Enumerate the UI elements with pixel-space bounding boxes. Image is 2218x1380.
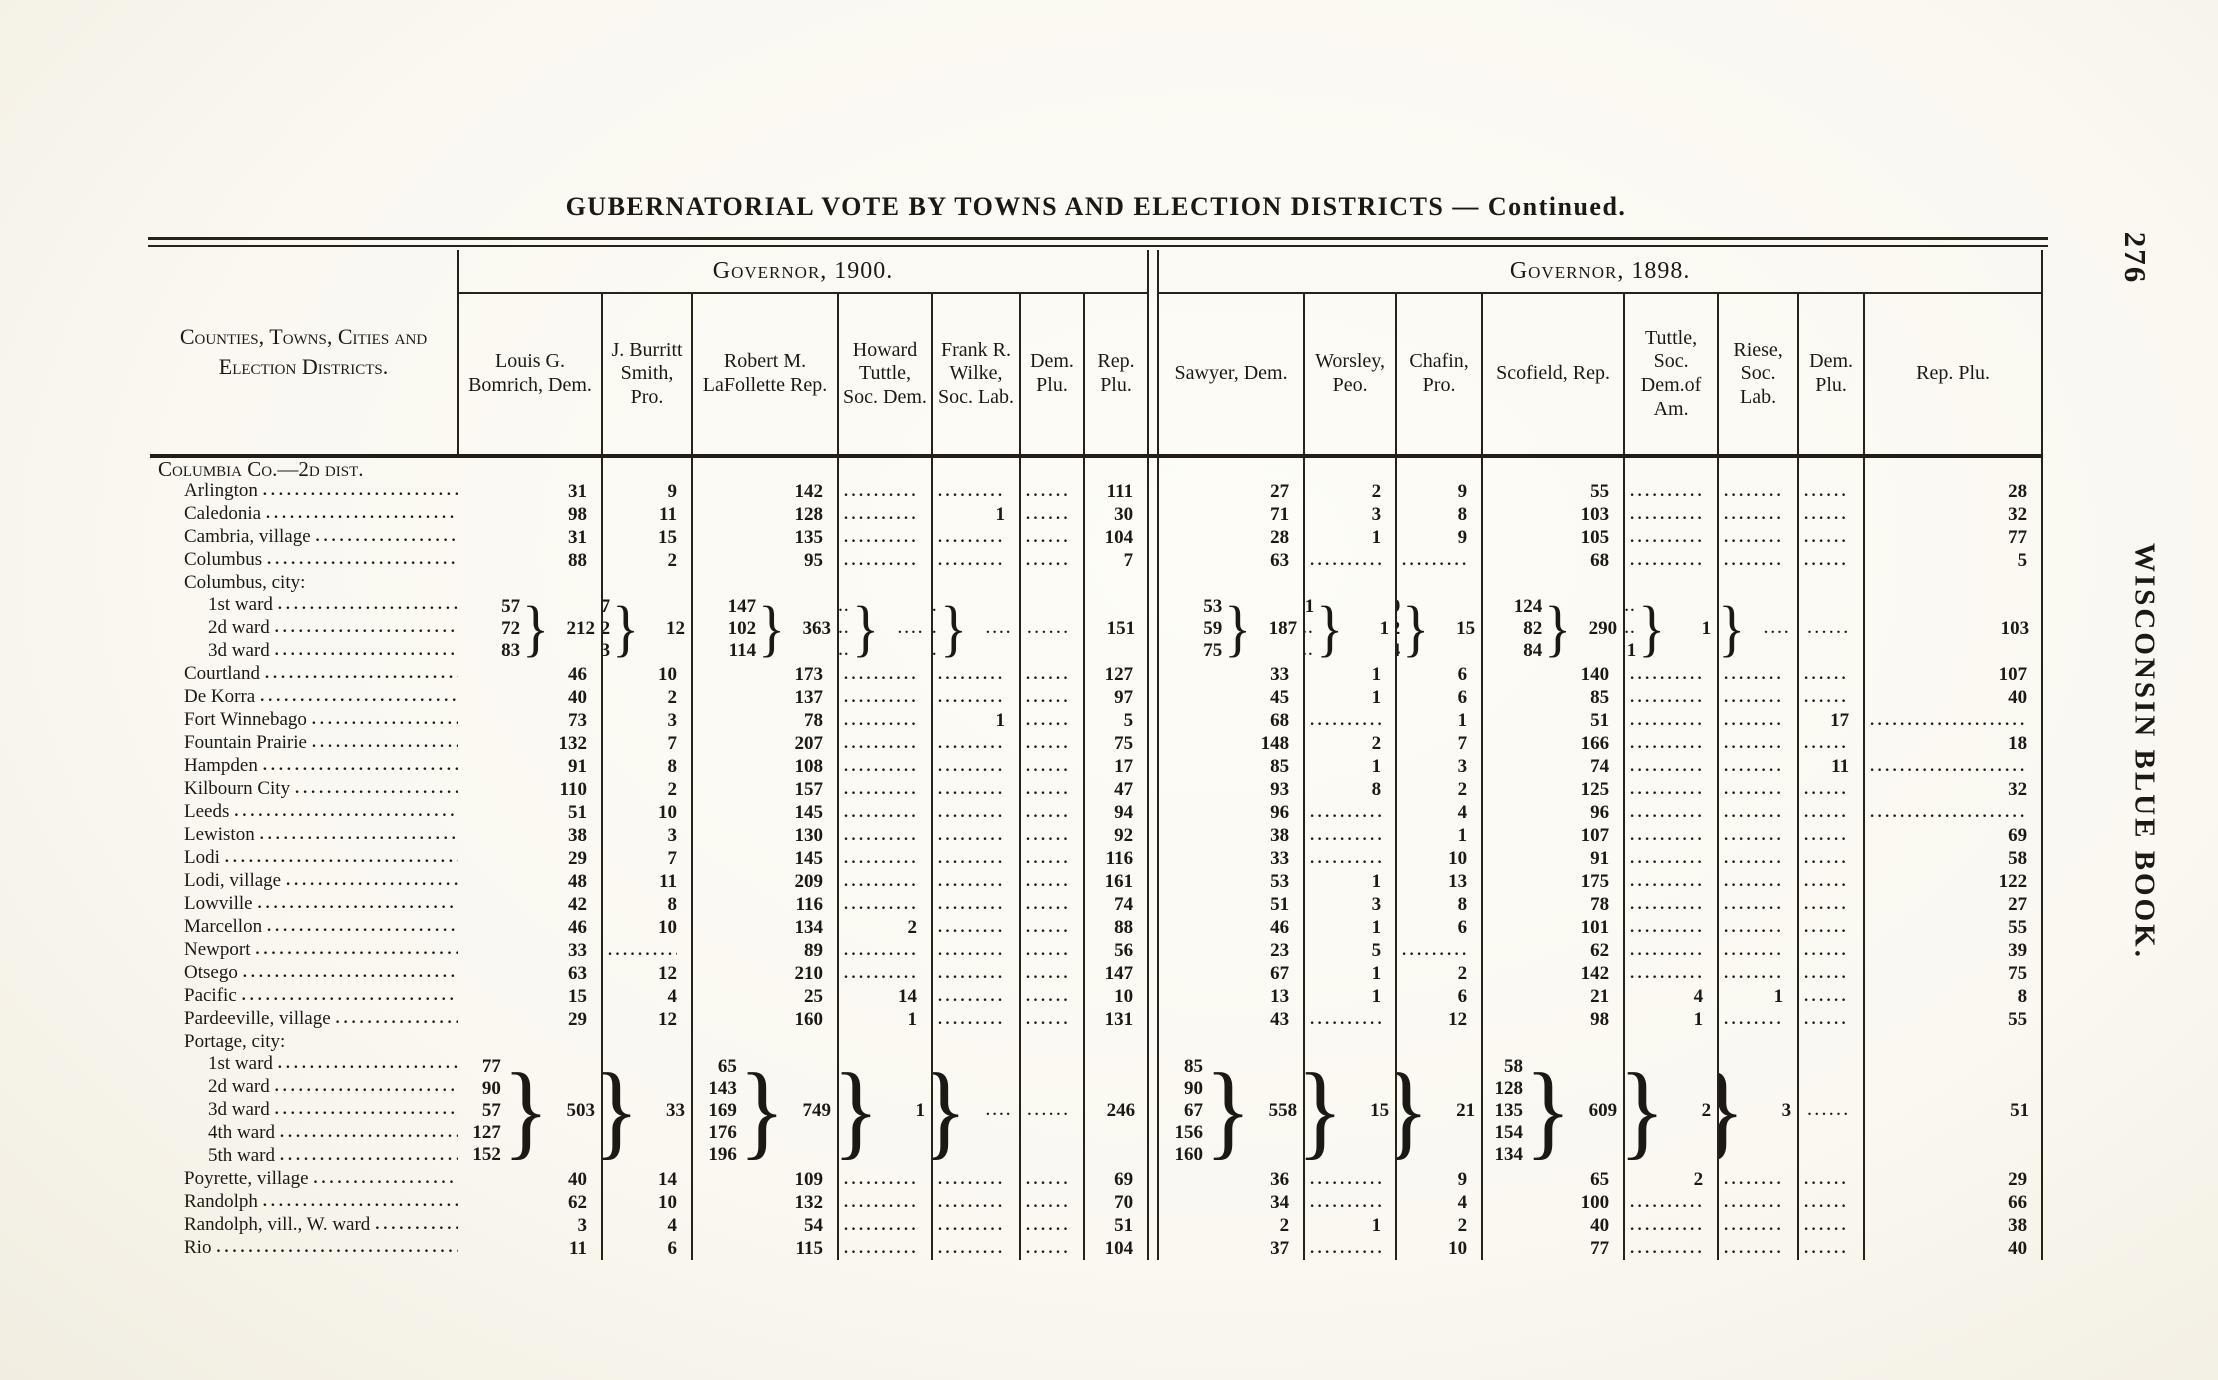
ward-value: 83 xyxy=(482,640,520,662)
value-cell: 33 xyxy=(1158,847,1304,870)
section-divider xyxy=(1148,893,1158,916)
value-cell: 2 xyxy=(838,916,932,939)
town-label: Pacific.................................… xyxy=(150,985,458,1008)
value-cell: 6 xyxy=(1396,663,1482,686)
value-cell: ...................... xyxy=(1798,480,1864,503)
value-cell: 4 xyxy=(602,1214,692,1237)
table-row: Randolph................................… xyxy=(150,1191,2042,1214)
ward-total: 212 xyxy=(549,618,595,640)
value-cell: 91 xyxy=(458,755,602,778)
value-cell xyxy=(1158,1031,1304,1053)
value-cell: ...................... xyxy=(1798,1191,1864,1214)
empty-dots: ...................... xyxy=(1719,527,1783,549)
value-cell: 25 xyxy=(692,985,838,1008)
empty-dots: ...................... xyxy=(1719,1192,1783,1214)
value-cell xyxy=(1304,456,1396,480)
empty-dots: ...................... xyxy=(839,756,917,778)
brace-glyph: } xyxy=(503,1058,549,1164)
town-label: Fountain Prairie........................… xyxy=(150,732,458,755)
ward-group: ..2..1..}3 xyxy=(1719,1056,1797,1166)
town-label: Lodi, village...........................… xyxy=(150,870,458,893)
empty-dots: ...................... xyxy=(1625,825,1703,847)
value-cell: 107 xyxy=(1482,824,1624,847)
row-header: Counties, Towns, Cities and Election Dis… xyxy=(150,250,458,456)
value-cell: ...................... xyxy=(1020,870,1084,893)
ward-group: 1248284}290 xyxy=(1483,596,1623,662)
value-cell: 2 xyxy=(602,778,692,801)
ward-value: 152 xyxy=(463,1144,501,1166)
ward-value: 82 xyxy=(1504,618,1542,640)
ward-group: 58128135154134}609 xyxy=(1483,1056,1623,1166)
row-label: 1st ward................................… xyxy=(150,1053,458,1076)
empty-dots: ...................... xyxy=(1799,825,1849,847)
leader-dots: ........................................… xyxy=(270,640,458,662)
value-cell: 29 xyxy=(458,1008,602,1031)
ward-values: 147102114 xyxy=(718,596,756,662)
value-cell: ...................... xyxy=(1718,732,1798,755)
empty-dots: ...................... xyxy=(1799,917,1849,939)
row-label: Randolph, vill., W. ward................… xyxy=(150,1214,458,1237)
value-cell: ...................... xyxy=(1718,480,1798,503)
ward-group-cell: 147102114}363 xyxy=(692,594,838,663)
empty-dots: ...................... xyxy=(839,550,917,572)
leader-dots: ........................................… xyxy=(229,801,458,823)
value-cell: 3 xyxy=(602,709,692,732)
leader-dots: ........................................… xyxy=(250,939,458,961)
column-header: Robert M. LaFollette Rep. xyxy=(692,293,838,456)
brace-glyph: } xyxy=(1525,1058,1571,1164)
value-cell: 166 xyxy=(1482,732,1624,755)
value-cell: ...................... xyxy=(1798,778,1864,801)
ward-value: 160 xyxy=(1165,1144,1203,1166)
value-cell: 13 xyxy=(1396,870,1482,893)
value-cell: 40 xyxy=(1864,1237,2042,1260)
value-cell: 4 xyxy=(1396,801,1482,824)
value-cell xyxy=(1304,572,1396,594)
value-cell: ...................... xyxy=(1718,686,1798,709)
group-heading-label: Portage, city: xyxy=(150,1031,458,1053)
value-cell: 160 xyxy=(692,1008,838,1031)
brace-glyph: } xyxy=(940,597,967,660)
ward-total: 2 xyxy=(1665,1100,1711,1122)
value-cell: ...................... xyxy=(1718,1214,1798,1237)
empty-dots: ...................... xyxy=(1625,940,1703,962)
ward-group: ..10713}21 xyxy=(1397,1056,1481,1166)
table-row: Newport.................................… xyxy=(150,939,2042,962)
scanned-book-page: GUBERNATORIAL VOTE BY TOWNS AND ELECTION… xyxy=(0,0,2218,1380)
value-cell: 27 xyxy=(1158,480,1304,503)
empty-dots: ...................... xyxy=(933,802,1005,824)
value-cell: ...................... xyxy=(1718,801,1798,824)
value-cell: 65 xyxy=(1482,1168,1624,1191)
value-cell: ...................... xyxy=(1798,847,1864,870)
section-divider xyxy=(1148,732,1158,755)
ward-total: .... xyxy=(967,1099,1013,1122)
town-label: Randolph, vill., W. ward xyxy=(184,1214,370,1236)
row-label: Randolph................................… xyxy=(150,1191,458,1214)
row-header-label: Counties, Towns, Cities and Election Dis… xyxy=(180,324,427,379)
value-cell: ...................... xyxy=(838,1191,932,1214)
ward-value: 67 xyxy=(1165,1100,1203,1122)
ward-group-cell: ...... xyxy=(1798,594,1864,663)
value-cell: 43 xyxy=(1158,1008,1304,1031)
value-cell: ...................... xyxy=(1798,824,1864,847)
empty-dots: ...................... xyxy=(1799,779,1849,801)
town-label: Lowville xyxy=(184,893,253,915)
value-cell: 116 xyxy=(692,893,838,916)
empty-dots: ...................... xyxy=(1625,779,1703,801)
group-single-value: 103 xyxy=(1865,618,2041,640)
empty-dots: ...................... xyxy=(1305,1238,1381,1260)
ward-value: 135 xyxy=(1485,1100,1523,1122)
table-row: 1st ward................................… xyxy=(150,1053,2042,1076)
section-divider xyxy=(1148,1237,1158,1260)
town-label: Marcellon...............................… xyxy=(150,916,458,939)
empty-dots: ...................... xyxy=(933,664,1005,686)
column-header: Sawyer, Dem. xyxy=(1158,293,1304,456)
row-label: Poyrette, village.......................… xyxy=(150,1168,458,1191)
leader-dots: ........................................… xyxy=(255,824,458,846)
value-cell: 88 xyxy=(458,549,602,572)
empty-dots: ...................... xyxy=(1799,527,1849,549)
value-cell: 77 xyxy=(1864,526,2042,549)
column-header: Chafin, Pro. xyxy=(1396,293,1482,456)
value-cell: ...................... xyxy=(932,824,1020,847)
empty-dots: ...................... xyxy=(1719,1009,1783,1031)
ward-value: 176 xyxy=(699,1122,737,1144)
value-cell xyxy=(1624,1031,1718,1053)
ward-value: 147 xyxy=(718,596,756,618)
value-cell: 5 xyxy=(1084,709,1148,732)
ward-total: 187 xyxy=(1251,618,1297,640)
brace-glyph: } xyxy=(1624,1058,1665,1164)
leader-dots: ........................................… xyxy=(258,480,458,502)
section-divider xyxy=(1148,503,1158,526)
ward-group: ......}.... xyxy=(839,596,931,662)
value-cell: 13 xyxy=(1158,985,1304,1008)
empty-dots: .... xyxy=(986,621,1013,637)
empty-dots: ...................... xyxy=(1719,550,1783,572)
value-cell: 98 xyxy=(458,503,602,526)
ward-value: 128 xyxy=(1485,1078,1523,1100)
value-cell: 6 xyxy=(1396,916,1482,939)
ward-values: ....1 xyxy=(1624,596,1636,662)
value-cell: ...................... xyxy=(1718,526,1798,549)
value-cell: ...................... xyxy=(1020,1168,1084,1191)
empty-dots: ...................... xyxy=(1625,710,1703,732)
empty-dots: ...................... xyxy=(1021,871,1069,893)
ward-group: 1....}1 xyxy=(1305,596,1395,662)
value-cell: 140 xyxy=(1482,663,1624,686)
empty-dots: ...................... xyxy=(1719,871,1783,893)
value-cell: 5 xyxy=(1864,549,2042,572)
section-divider xyxy=(1148,1191,1158,1214)
value-cell: ...................... xyxy=(1304,824,1396,847)
value-cell: ...................... xyxy=(1798,526,1864,549)
group-single-value: ...... xyxy=(1021,618,1083,640)
empty-dots: ...................... xyxy=(933,1238,1005,1260)
value-cell: 12 xyxy=(602,962,692,985)
value-cell: 97 xyxy=(1084,686,1148,709)
value-cell: ...................... xyxy=(1020,801,1084,824)
ward-value: 59 xyxy=(1184,618,1222,640)
value-cell: 101 xyxy=(1482,916,1624,939)
empty-dots: ...................... xyxy=(839,527,917,549)
value-cell: 69 xyxy=(1084,1168,1148,1191)
row-label: Portage, city: xyxy=(150,1031,458,1053)
ward-value: .. xyxy=(932,596,938,618)
town-label: Fort Winnebago..........................… xyxy=(150,709,458,732)
value-cell: 66 xyxy=(1864,1191,2042,1214)
ward-total: .... xyxy=(1745,617,1791,640)
value-cell: ...................... xyxy=(1624,1237,1718,1260)
ward-group-cell: 51 xyxy=(1864,1053,2042,1168)
value-cell: ...................... xyxy=(1304,1191,1396,1214)
value-cell: 131 xyxy=(1084,1008,1148,1031)
value-cell: 54 xyxy=(692,1214,838,1237)
value-cell xyxy=(932,572,1020,594)
value-cell: ...................... xyxy=(932,985,1020,1008)
empty-dots: ...................... xyxy=(839,894,917,916)
row-label: 5th ward................................… xyxy=(150,1145,458,1168)
section-divider xyxy=(1148,824,1158,847)
value-cell xyxy=(1482,1031,1624,1053)
value-cell: 28 xyxy=(1864,480,2042,503)
value-cell xyxy=(692,1031,838,1053)
ward-total: 1 xyxy=(1665,618,1711,640)
leader-dots: ........................................… xyxy=(307,732,458,754)
ward-values: 1.... xyxy=(1304,596,1314,662)
empty-dots: ...................... xyxy=(1799,1192,1849,1214)
section-divider xyxy=(1148,870,1158,893)
value-cell: ...................... xyxy=(1718,1191,1798,1214)
value-cell: 8 xyxy=(1304,778,1396,801)
leader-dots: ........................................… xyxy=(253,893,458,915)
group-single-value: ...... xyxy=(1799,1100,1863,1122)
empty-dots: ...................... xyxy=(933,848,1005,870)
value-cell: 40 xyxy=(1864,686,2042,709)
table-row: Courtland...............................… xyxy=(150,663,2042,686)
empty-dots: ...................... xyxy=(1625,802,1703,824)
value-cell: 122 xyxy=(1864,870,2042,893)
value-cell xyxy=(838,572,932,594)
value-cell xyxy=(1718,1031,1798,1053)
value-cell: ...................... xyxy=(1020,778,1084,801)
value-cell: 33 xyxy=(1158,663,1304,686)
empty-dots: ...... xyxy=(1028,1100,1072,1122)
ward-value: 7 xyxy=(602,596,610,618)
table-row: Lodi....................................… xyxy=(150,847,2042,870)
empty-dots: ...................... xyxy=(1625,527,1703,549)
column-header: Riese, Soc. Lab. xyxy=(1718,293,1798,456)
ward-label: 5th ward xyxy=(208,1145,275,1167)
value-cell: ...................... xyxy=(1718,663,1798,686)
value-cell: 62 xyxy=(458,1191,602,1214)
town-label: De Korra................................… xyxy=(150,686,458,709)
value-cell: 1 xyxy=(1396,709,1482,732)
value-cell: 33 xyxy=(458,939,602,962)
town-label: Lodi, village xyxy=(184,870,281,892)
value-cell: ...................... xyxy=(1798,939,1864,962)
ward-value: 143 xyxy=(699,1078,737,1100)
value-cell xyxy=(1718,456,1798,480)
table-row: Caledonia...............................… xyxy=(150,503,2042,526)
row-label: 3d ward.................................… xyxy=(150,1099,458,1122)
ward-group-cell: ......}.... xyxy=(838,594,932,663)
ward-total: 1 xyxy=(1343,618,1389,640)
value-cell: ...................... xyxy=(1624,526,1718,549)
town-label: Newport.................................… xyxy=(150,939,458,962)
column-header: Dem. Plu. xyxy=(1798,293,1864,456)
ward-value: 9 xyxy=(1396,596,1400,618)
value-cell: 55 xyxy=(1864,1008,2042,1031)
value-cell: 1 xyxy=(1304,1214,1396,1237)
value-cell: ...................... xyxy=(932,549,1020,572)
empty-dots: ...................... xyxy=(1799,481,1849,503)
town-label: Lodi....................................… xyxy=(150,847,458,870)
value-cell: ...................... xyxy=(1396,939,1482,962)
leader-dots: ........................................… xyxy=(261,503,458,525)
value-cell: 161 xyxy=(1084,870,1148,893)
value-cell: ...................... xyxy=(932,962,1020,985)
value-cell: ...................... xyxy=(1624,755,1718,778)
ward-values: 859067156160 xyxy=(1165,1056,1203,1166)
brace-glyph: } xyxy=(1718,1058,1745,1164)
value-cell xyxy=(932,1031,1020,1053)
value-cell: 1 xyxy=(1304,663,1396,686)
town-label: Rio.....................................… xyxy=(150,1237,458,1260)
value-cell: 128 xyxy=(692,503,838,526)
value-cell: 135 xyxy=(692,526,838,549)
empty-dots: ...................... xyxy=(839,481,917,503)
value-cell: 46 xyxy=(458,916,602,939)
value-cell: ...................... xyxy=(932,1168,1020,1191)
ward-values: ...... xyxy=(838,596,850,662)
empty-dots: ...................... xyxy=(839,802,917,824)
ward-value: 57 xyxy=(482,596,520,618)
empty-dots: ...................... xyxy=(1625,687,1703,709)
value-cell xyxy=(1864,1031,2042,1053)
ward-values: 58128135154134 xyxy=(1485,1056,1523,1166)
value-cell xyxy=(1020,1031,1084,1053)
empty-dots: ...... xyxy=(1028,618,1072,640)
empty-dots: ...................... xyxy=(1719,940,1783,962)
ward-group: 535975}187 xyxy=(1159,596,1303,662)
value-cell: ...................... xyxy=(932,686,1020,709)
value-cell: ...................... xyxy=(1624,1214,1718,1237)
brace-glyph: } xyxy=(838,1058,879,1164)
ward-group: 147102114}363 xyxy=(693,596,837,662)
value-cell: 51 xyxy=(458,801,602,824)
town-label: Courtland xyxy=(184,663,260,685)
value-cell: ...................... xyxy=(1020,1008,1084,1031)
value-cell: 105 xyxy=(1482,526,1624,549)
table-header-year-1900: Governor, 1900. xyxy=(458,250,1148,293)
table-row: Columbus, city: xyxy=(150,572,2042,594)
town-label: Courtland...............................… xyxy=(150,663,458,686)
ward-group-cell: ....1....}1 xyxy=(838,1053,932,1168)
empty-dots: ...................... xyxy=(1719,733,1783,755)
value-cell: ...................... xyxy=(1798,1237,1864,1260)
ward-label: 2d ward xyxy=(208,1076,270,1098)
table-row: Leeds...................................… xyxy=(150,801,2042,824)
table-row: Rio.....................................… xyxy=(150,1237,2042,1260)
leader-dots: ........................................… xyxy=(262,549,458,571)
section-divider xyxy=(1148,939,1158,962)
ward-group-cell: ....1}1 xyxy=(1624,594,1718,663)
row-label: Newport.................................… xyxy=(150,939,458,962)
ward-value: 85 xyxy=(1165,1056,1203,1078)
section-divider xyxy=(1148,1008,1158,1031)
value-cell: ...................... xyxy=(1624,549,1718,572)
value-cell: 92 xyxy=(1084,824,1148,847)
ward-total: 749 xyxy=(785,1100,831,1122)
value-cell: 55 xyxy=(1864,916,2042,939)
town-label: Otsego..................................… xyxy=(150,962,458,985)
leader-dots: ........................................… xyxy=(311,526,458,548)
empty-dots: ...................... xyxy=(933,687,1005,709)
section-divider xyxy=(1148,709,1158,732)
value-cell xyxy=(692,572,838,594)
empty-dots: ...................... xyxy=(1625,550,1703,572)
value-cell xyxy=(1624,456,1718,480)
empty-dots: ...................... xyxy=(1719,756,1783,778)
value-cell: ...................... xyxy=(1624,663,1718,686)
ward-group-cell: 65143169176196}749 xyxy=(692,1053,838,1168)
value-cell: 7 xyxy=(1084,549,1148,572)
table-row: Columbus................................… xyxy=(150,549,2042,572)
ward-value: 154 xyxy=(1485,1122,1523,1144)
value-cell: 45 xyxy=(1158,686,1304,709)
empty-dots: ...................... xyxy=(1021,687,1069,709)
value-cell: 137 xyxy=(692,686,838,709)
empty-dots: ...................... xyxy=(1625,917,1703,939)
ward-label: 2d ward xyxy=(208,617,270,639)
empty-dots: ...................... xyxy=(1305,1192,1381,1214)
value-cell: 207 xyxy=(692,732,838,755)
empty-dots: ...................... xyxy=(1625,1192,1703,1214)
value-cell: ...................... xyxy=(932,1214,1020,1237)
value-cell: 1 xyxy=(932,503,1020,526)
ward-group: 577283}212 xyxy=(458,596,601,662)
empty-dots: ...................... xyxy=(1305,1009,1381,1031)
value-cell xyxy=(1624,572,1718,594)
section-divider xyxy=(1148,250,1158,456)
value-cell: ...................... xyxy=(838,663,932,686)
town-label: Kilbourn City...........................… xyxy=(150,778,458,801)
empty-dots: ...................... xyxy=(1719,504,1783,526)
value-cell: ...................... xyxy=(1304,549,1396,572)
ward-group-cell: 779057127152}503 xyxy=(458,1053,602,1168)
ward-value: 72 xyxy=(482,618,520,640)
row-label: Columbus, city: xyxy=(150,572,458,594)
ward-values: 779057127152 xyxy=(463,1056,501,1166)
value-cell: ...................... xyxy=(1624,893,1718,916)
leader-dots: ........................................… xyxy=(255,686,458,708)
empty-dots: ...................... xyxy=(1625,664,1703,686)
empty-dots: ...................... xyxy=(839,848,917,870)
table-row: Kilbourn City...........................… xyxy=(150,778,2042,801)
row-label: Courtland...............................… xyxy=(150,663,458,686)
leader-dots: ........................................… xyxy=(258,755,458,777)
table-body: Columbia Co.—2d dist.Arlington..........… xyxy=(150,456,2042,1260)
ward-values: 723 xyxy=(602,596,610,662)
value-cell: ...................... xyxy=(1624,709,1718,732)
value-cell: 63 xyxy=(458,962,602,985)
table-row: Cambria, village........................… xyxy=(150,526,2042,549)
value-cell: ...................... xyxy=(1020,755,1084,778)
town-label: Columbus xyxy=(184,549,262,571)
